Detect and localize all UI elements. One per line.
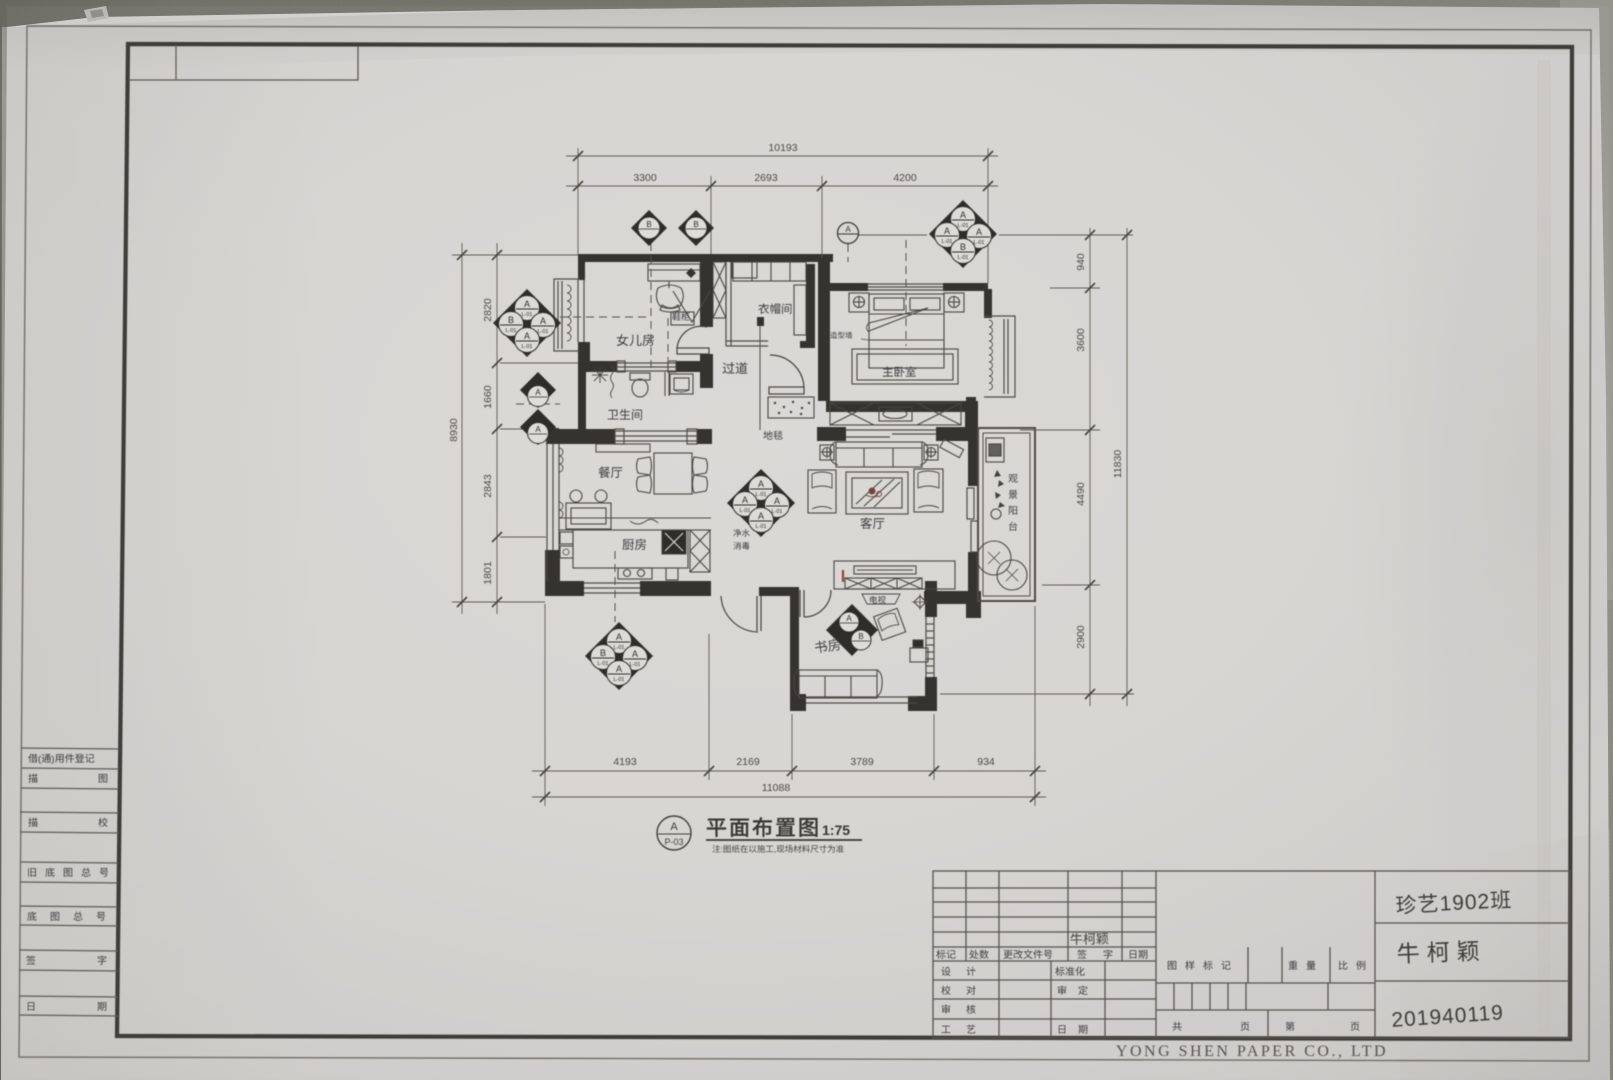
svg-text:1801: 1801 — [482, 561, 494, 585]
svg-text:11088: 11088 — [762, 782, 791, 794]
svg-text:2820: 2820 — [482, 298, 494, 322]
svg-text:): ) — [51, 754, 54, 765]
svg-text:B: B — [693, 220, 698, 229]
svg-text:11830: 11830 — [1112, 450, 1124, 479]
svg-text:P-03: P-03 — [664, 837, 683, 847]
svg-text::: : — [721, 844, 723, 854]
svg-text:B: B — [646, 220, 651, 229]
svg-text:3600: 3600 — [1075, 328, 1087, 352]
svg-text:L-01: L-01 — [613, 677, 624, 683]
svg-text:4200: 4200 — [893, 172, 917, 184]
svg-text:L-01: L-01 — [941, 239, 952, 245]
svg-text:A: A — [616, 664, 622, 674]
svg-text:A: A — [535, 388, 541, 397]
svg-text:A: A — [960, 210, 966, 220]
svg-text:A: A — [632, 649, 638, 659]
svg-text:A: A — [670, 821, 678, 833]
svg-text:2900: 2900 — [1075, 625, 1087, 649]
svg-text:3300: 3300 — [633, 172, 657, 184]
svg-text:A: A — [845, 225, 851, 234]
svg-text:A: A — [944, 226, 950, 236]
svg-text:B: B — [960, 242, 966, 252]
svg-text:L-01: L-01 — [629, 662, 640, 668]
svg-text:2: 2 — [1477, 890, 1490, 914]
svg-text:4490: 4490 — [1075, 482, 1087, 506]
svg-text:1: 1 — [1439, 892, 1452, 916]
svg-text:A: A — [758, 479, 764, 489]
svg-text:3789: 3789 — [850, 756, 874, 768]
svg-text:L-01: L-01 — [957, 223, 968, 229]
svg-text:1:75: 1:75 — [822, 822, 850, 838]
svg-text:A: A — [976, 227, 982, 237]
svg-text:L-01: L-01 — [521, 312, 532, 318]
svg-text:4193: 4193 — [613, 756, 637, 768]
svg-text:L-01: L-01 — [613, 645, 624, 651]
svg-text:A: A — [524, 331, 530, 341]
svg-text:A: A — [758, 511, 764, 521]
svg-text:,: , — [774, 844, 776, 854]
svg-text:YONG SHEN PAPER CO., LTD: YONG SHEN PAPER CO., LTD — [1116, 1043, 1388, 1060]
svg-text:B: B — [858, 632, 863, 641]
svg-text:L-01: L-01 — [521, 344, 532, 350]
svg-text:A: A — [846, 614, 852, 623]
svg-text:A: A — [535, 425, 541, 434]
svg-text:2693: 2693 — [754, 172, 778, 184]
svg-text:L-01: L-01 — [537, 329, 548, 335]
svg-text:8930: 8930 — [448, 418, 460, 442]
svg-text:L-01: L-01 — [771, 509, 782, 515]
svg-text:A: A — [616, 632, 622, 642]
svg-text:A: A — [524, 299, 530, 309]
svg-text:1660: 1660 — [482, 385, 494, 409]
svg-text:L-01: L-01 — [973, 240, 984, 246]
svg-text:L-01: L-01 — [957, 255, 968, 261]
svg-text:934: 934 — [977, 756, 995, 768]
svg-text:B: B — [508, 315, 514, 325]
svg-text:940: 940 — [1075, 253, 1087, 271]
svg-text:B: B — [600, 648, 606, 658]
svg-text:L-01: L-01 — [597, 661, 608, 667]
svg-text:A: A — [742, 495, 748, 505]
svg-text:9: 9 — [1452, 891, 1465, 915]
svg-text:2843: 2843 — [482, 474, 494, 498]
svg-text:A: A — [774, 496, 780, 506]
svg-text:L-01: L-01 — [755, 524, 766, 530]
svg-text:2169: 2169 — [736, 756, 760, 768]
svg-text:10193: 10193 — [768, 142, 797, 154]
svg-text:L-01: L-01 — [755, 492, 766, 498]
svg-text:0: 0 — [1464, 891, 1477, 915]
svg-text:L-01: L-01 — [505, 328, 516, 334]
svg-text:L-01: L-01 — [739, 508, 750, 514]
svg-text:A: A — [540, 316, 546, 326]
